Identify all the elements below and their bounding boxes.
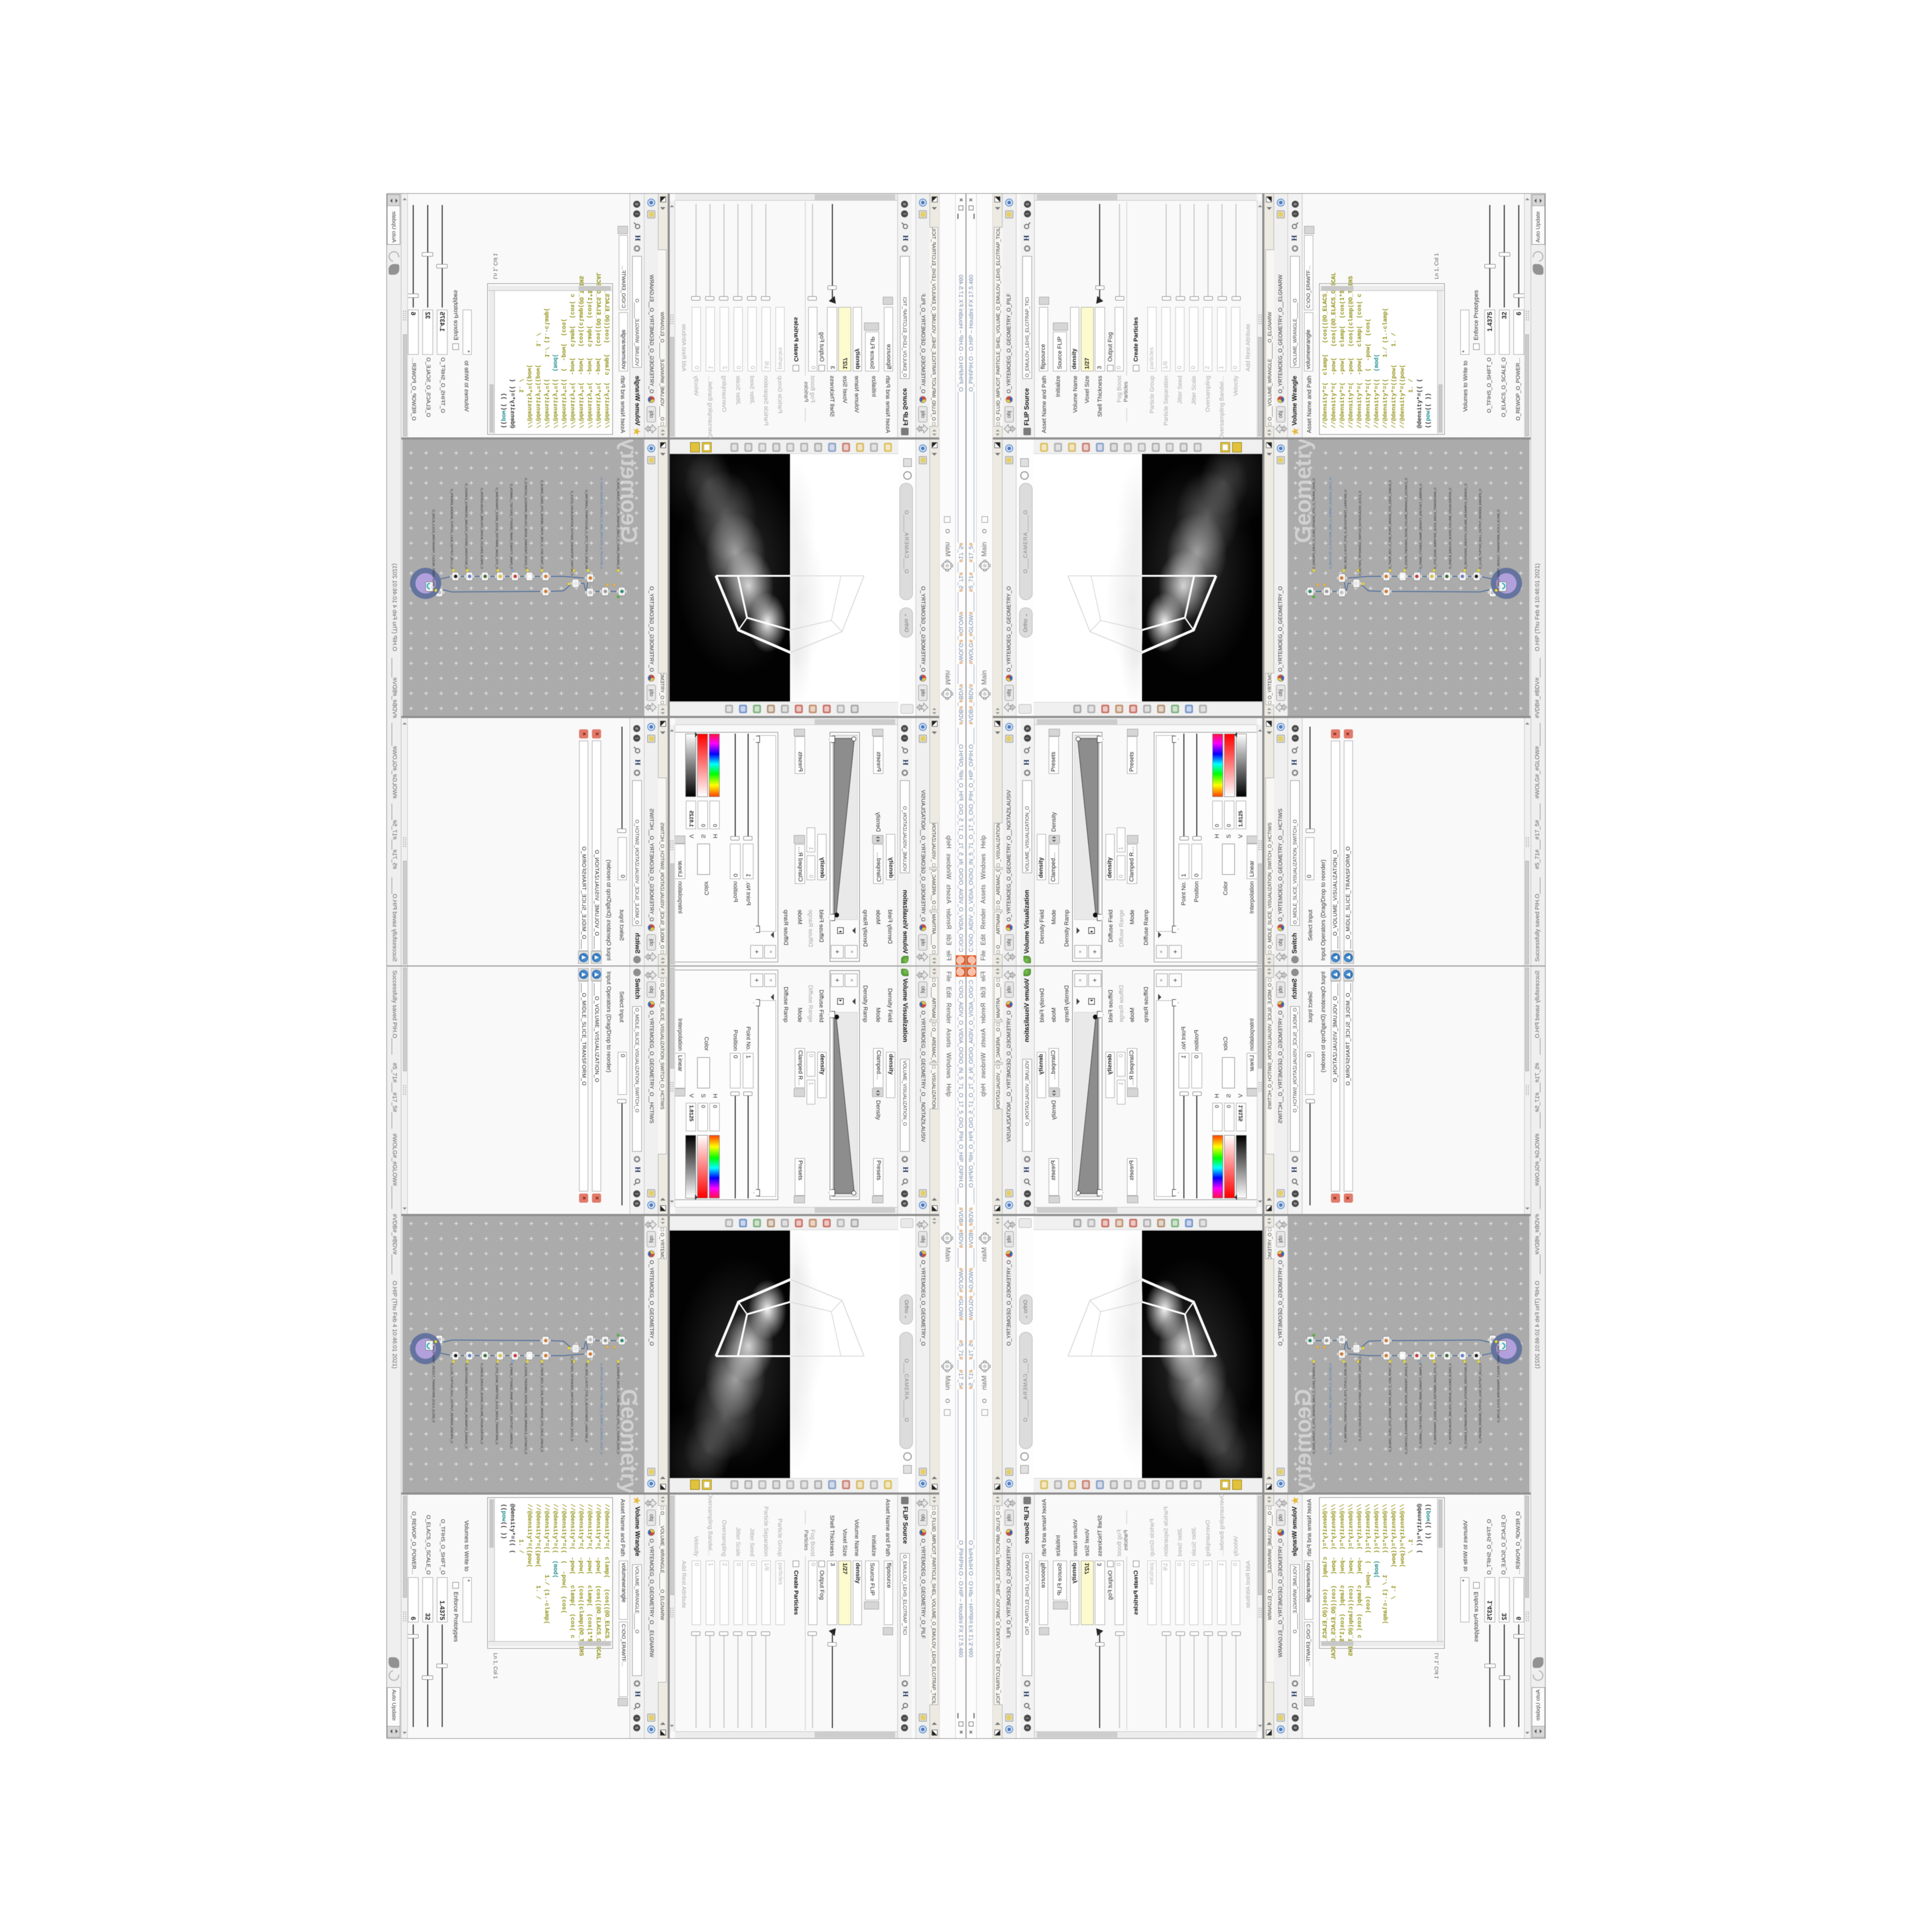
svg-text:O_3751_EDAF_WARFTER_SLICE_MIDL: O_3751_EDAF_WARFTER_SLICE_MIDLE_TRANSFOR… — [495, 487, 498, 569]
svg-text:O_REHTOOMS_SMOOTH_VOLUME_RESAM: O_REHTOOMS_SMOOTH_VOLUME_RESAMPLE_ESRAOC… — [464, 483, 467, 569]
svg-text:O_EREHPS_EBUC_O_CUBE_SPHERE_37: O_EREHPS_EBUC_O_CUBE_SPHERE_3751_O_TDUR4… — [1313, 478, 1316, 569]
svg-text:O_3751_EDAF_WARFTER_SLICE_MIDL: O_3751_EDAF_WARFTER_SLICE_MIDLE_TRANSFOR… — [495, 1363, 498, 1445]
svg-text:O_PMAR_YTISNED_RAMP_DENSITY_ER: O_PMAR_YTISNED_RAMP_DENSITY_ERUTXET_LAMR… — [509, 484, 513, 569]
svg-text:O_PMAR_YTISNED_RAMP_DENSITY_ER: O_PMAR_YTISNED_RAMP_DENSITY_ERUTXET_LAMR… — [1419, 1363, 1423, 1448]
svg-text:O_PMAR_YTISNED_RAMP_DENSITY_ER: O_PMAR_YTISNED_RAMP_DENSITY_ERUTXET_LAMR… — [509, 1363, 513, 1448]
svg-text:O_HCTIWS_YRTEMOEG_SWITCH_NOITA: O_HCTIWS_YRTEMOEG_SWITCH_NOITAZILAUSIV_E… — [1359, 491, 1362, 576]
svg-text:O_ESION_TNEIDARG_NOISE_VOLUME_: O_ESION_TNEIDARG_NOISE_VOLUME_WRANGLE_LE… — [524, 478, 527, 569]
svg-text:BO_MOD_2.4375T_2T35_O_ADJUSTME: BO_MOD_2.4375T_2T35_O_ADJUSTMENT_LAIRETA… — [1344, 1363, 1348, 1443]
svg-text:O_REHTOOMS_SMOOTH_VOLUME_RESAM: O_REHTOOMS_SMOOTH_VOLUME_RESAMPLE_ESRAOC… — [464, 1363, 467, 1449]
svg-text:O_3751_EDAF_WARFTER_SLICE_MIDL: O_3751_EDAF_WARFTER_SLICE_MIDLE_TRANSFOR… — [1434, 1363, 1437, 1445]
svg-text:O_REHTOOMS_SMOOTH_VOLUME_RESAM: O_REHTOOMS_SMOOTH_VOLUME_RESAMPLE_ESRAOC… — [1465, 1363, 1468, 1449]
svg-text:BO_MOD_2.4375T_2T35_O_ADJUSTME: BO_MOD_2.4375T_2T35_O_ADJUSTMENT_LAIRETA… — [584, 489, 588, 569]
svg-text:O_HCTIWS_YRTEMOEG_SWITCH_NOITA: O_HCTIWS_YRTEMOEG_SWITCH_NOITAZILAUSIV_E… — [1359, 1356, 1362, 1441]
svg-text:O_BDVYLOP_O_POLYVDB_2880_O_SUB: O_BDVYLOP_O_POLYVDB_2880_O_SUBNET_ECRUOS… — [599, 1363, 603, 1455]
svg-text:O_DNELB_EMULOV_BLEND_VOLUME_VI: O_DNELB_EMULOV_BLEND_VOLUME_VISUALIZATIO… — [1449, 487, 1452, 569]
svg-text:BO_MOD_2.4375T_2T35_O_ADJUSTME: BO_MOD_2.4375T_2T35_O_ADJUSTMENT_LAIRETA… — [584, 1363, 588, 1443]
svg-text:O_3751_EDAF_WARFTER_SLICE_MIDL: O_3751_EDAF_WARFTER_SLICE_MIDLE_TRANSFOR… — [1434, 487, 1437, 569]
svg-text:O_TNIOP_BDV_O_VDB_POINT_MERGE_: O_TNIOP_BDV_O_VDB_POINT_MERGE_3751_EBUC_… — [1389, 1363, 1392, 1452]
svg-text:O_EREHPS_EBUC_O_CUBE_SPHERE_37: O_EREHPS_EBUC_O_CUBE_SPHERE_3751_O_TDUR4… — [616, 1363, 619, 1454]
svg-text:O_EREHPS_EBUC_O_CUBE_SPHERE_37: O_EREHPS_EBUC_O_CUBE_SPHERE_3751_O_TDUR4… — [616, 478, 619, 569]
svg-text:BO_MOD_2.4375T_2T35_O_ADJUSTME: BO_MOD_2.4375T_2T35_O_ADJUSTMENT_LAIRETA… — [1344, 489, 1348, 569]
svg-text:O_LLUN_TUPTUO_NULL_OUTPUT_REND: O_LLUN_TUPTUO_NULL_OUTPUT_RENDER_EREHPS_… — [1479, 1363, 1482, 1444]
svg-text:O_ESION_TNEIDARG_NOISE_VOLUME_: O_ESION_TNEIDARG_NOISE_VOLUME_WRANGLE_LE… — [1405, 478, 1408, 569]
svg-text:O_EREHPS_EBUC_O_CUBE_SPHERE_37: O_EREHPS_EBUC_O_CUBE_SPHERE_3751_O_TDUR4… — [1313, 1363, 1316, 1454]
svg-text:O_DNELB_EMULOV_BLEND_VOLUME_VI: O_DNELB_EMULOV_BLEND_VOLUME_VISUALIZATIO… — [1449, 1363, 1452, 1445]
svg-text:O_ESION_TNEIDARG_NOISE_VOLUME_: O_ESION_TNEIDARG_NOISE_VOLUME_WRANGLE_LE… — [524, 1363, 527, 1454]
svg-text:O_HCTIWS_YRTEMOEG_SWITCH_NOITA: O_HCTIWS_YRTEMOEG_SWITCH_NOITAZILAUSIV_E… — [570, 491, 573, 576]
svg-text:O_ESION_TNEIDARG_NOISE_VOLUME_: O_ESION_TNEIDARG_NOISE_VOLUME_WRANGLE_LE… — [1405, 1363, 1408, 1454]
svg-text:O_BDVYLOP_O_POLYVDB_2880_O_SUB: O_BDVYLOP_O_POLYVDB_2880_O_SUBNET_ECRUOS… — [599, 477, 603, 569]
svg-text:O_BDVYLOP_O_POLYVDB_2880_O_SUB: O_BDVYLOP_O_POLYVDB_2880_O_SUBNET_ECRUOS… — [1329, 1363, 1333, 1455]
svg-text:O_MROFSNART_RESULT_TRANSFORM_E: O_MROFSNART_RESULT_TRANSFORM_ECILS_ELDIM… — [1497, 509, 1501, 590]
svg-text:O_LLUN_TUPTUO_NULL_OUTPUT_REND: O_LLUN_TUPTUO_NULL_OUTPUT_RENDER_EREHPS_… — [450, 488, 453, 569]
svg-text:O_DNELB_EMULOV_BLEND_VOLUME_VI: O_DNELB_EMULOV_BLEND_VOLUME_VISUALIZATIO… — [480, 487, 483, 569]
svg-text:O_MROFSNART_RESULT_TRANSFORM_E: O_MROFSNART_RESULT_TRANSFORM_ECILS_ELDIM… — [431, 1342, 435, 1423]
svg-text:O_REHTOOMS_SMOOTH_VOLUME_RESAM: O_REHTOOMS_SMOOTH_VOLUME_RESAMPLE_ESRAOC… — [1465, 483, 1468, 569]
svg-text:O_MROFSNART_RESULT_TRANSFORM_E: O_MROFSNART_RESULT_TRANSFORM_ECILS_ELDIM… — [1497, 1342, 1501, 1423]
svg-text:O_LLUN_TUPTUO_NULL_OUTPUT_REND: O_LLUN_TUPTUO_NULL_OUTPUT_RENDER_EREHPS_… — [1479, 488, 1482, 569]
svg-text:O_PMAR_YTISNED_RAMP_DENSITY_ER: O_PMAR_YTISNED_RAMP_DENSITY_ERUTXET_LAMR… — [1419, 484, 1423, 569]
svg-text:O_TNIOP_BDV_O_VDB_POINT_MERGE_: O_TNIOP_BDV_O_VDB_POINT_MERGE_3751_EBUC_… — [540, 480, 543, 569]
svg-text:O_TNIOP_BDV_O_VDB_POINT_MERGE_: O_TNIOP_BDV_O_VDB_POINT_MERGE_3751_EBUC_… — [540, 1363, 543, 1452]
svg-text:O_DNELB_EMULOV_BLEND_VOLUME_VI: O_DNELB_EMULOV_BLEND_VOLUME_VISUALIZATIO… — [480, 1363, 483, 1445]
svg-text:O_TNIOP_BDV_O_VDB_POINT_MERGE_: O_TNIOP_BDV_O_VDB_POINT_MERGE_3751_EBUC_… — [1389, 480, 1392, 569]
svg-text:O_LLUN_TUPTUO_NULL_OUTPUT_REND: O_LLUN_TUPTUO_NULL_OUTPUT_RENDER_EREHPS_… — [450, 1363, 453, 1444]
svg-text:O_HCTIWS_YRTEMOEG_SWITCH_NOITA: O_HCTIWS_YRTEMOEG_SWITCH_NOITAZILAUSIV_E… — [570, 1356, 573, 1441]
svg-text:O_BDVYLOP_O_POLYVDB_2880_O_SUB: O_BDVYLOP_O_POLYVDB_2880_O_SUBNET_ECRUOS… — [1329, 477, 1333, 569]
svg-text:O_MROFSNART_RESULT_TRANSFORM_E: O_MROFSNART_RESULT_TRANSFORM_ECILS_ELDIM… — [431, 509, 435, 590]
